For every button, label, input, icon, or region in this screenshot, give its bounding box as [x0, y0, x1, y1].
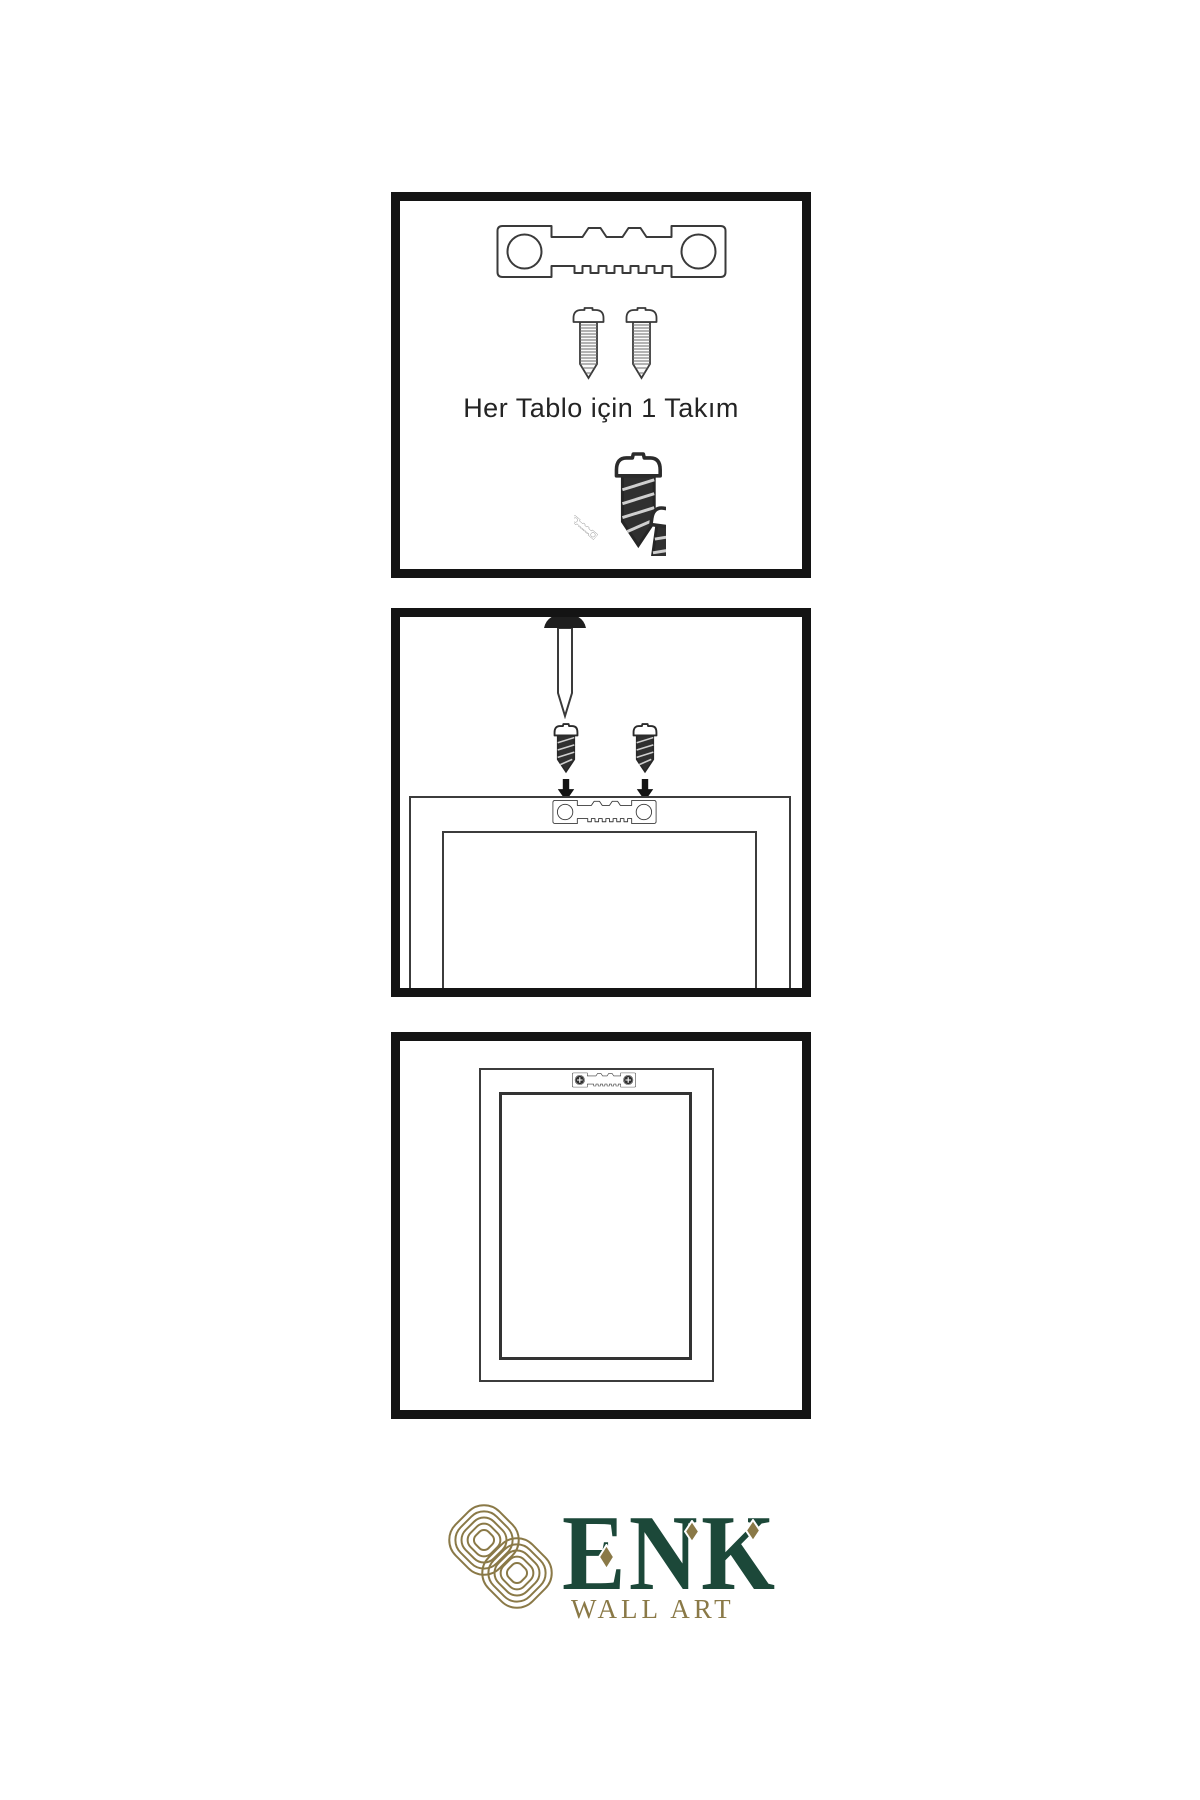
diamond-accent-icon — [684, 1520, 700, 1543]
screw-icon — [624, 307, 659, 381]
picture-frame-inner-outline — [499, 1092, 692, 1360]
brand-subtitle: WALL ART — [571, 1594, 735, 1625]
kit-caption: Her Tablo için 1 Takım — [400, 393, 802, 424]
screw-into-hanger-icon — [574, 448, 666, 556]
knot-logo-icon — [438, 1490, 563, 1623]
diamond-accent-icon — [745, 1519, 761, 1542]
picture-frame-inner-outline — [442, 831, 757, 997]
screw-icon — [552, 723, 580, 775]
sawtooth-hanger-icon — [552, 800, 657, 824]
panel-hung-frame — [391, 1032, 811, 1419]
brand-name: ENK — [562, 1500, 779, 1608]
installed-hanger-icon — [572, 1071, 636, 1089]
screw-icon — [631, 723, 659, 775]
panel-hardware-kit: Her Tablo için 1 Takım — [391, 192, 811, 578]
diamond-accent-icon — [598, 1544, 615, 1570]
nail-icon — [543, 613, 587, 719]
sawtooth-hanger-icon — [496, 225, 727, 278]
panel-wall-mounting — [391, 608, 811, 997]
instruction-sheet: Her Tablo için 1 Takım — [0, 0, 1200, 1800]
screw-icon — [571, 307, 606, 381]
